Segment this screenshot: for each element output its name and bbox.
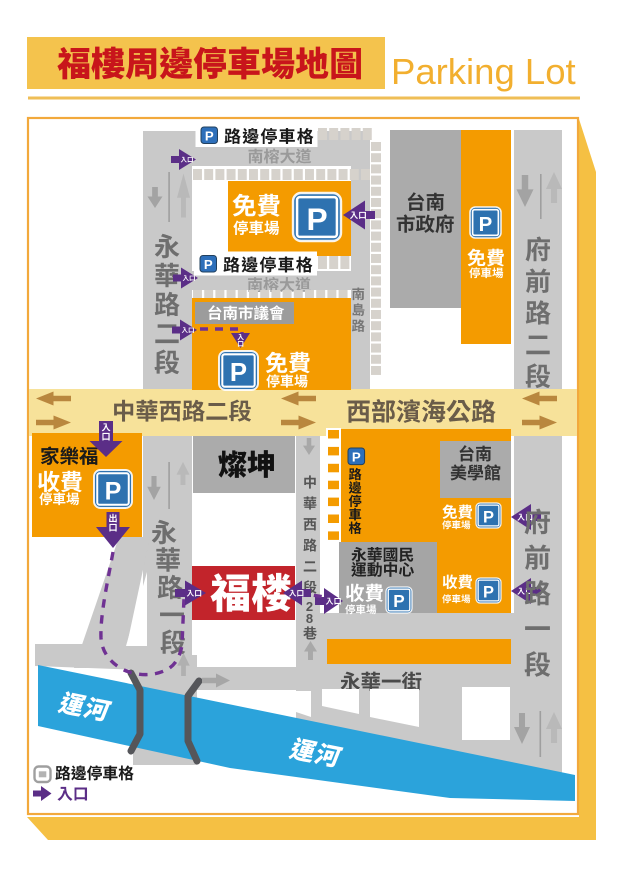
svg-text:P: P (483, 583, 494, 601)
svg-text:P: P (483, 508, 494, 526)
svg-text:P: P (352, 450, 361, 465)
svg-text:P: P (393, 591, 404, 611)
svg-text:Parking Lot: Parking Lot (391, 51, 576, 92)
svg-text:P: P (306, 201, 327, 237)
svg-text:8: 8 (306, 611, 313, 626)
svg-text:P: P (105, 477, 122, 505)
svg-text:P: P (479, 213, 493, 236)
svg-text:P: P (230, 359, 247, 387)
svg-text:P: P (204, 257, 213, 272)
svg-text:P: P (205, 129, 214, 144)
